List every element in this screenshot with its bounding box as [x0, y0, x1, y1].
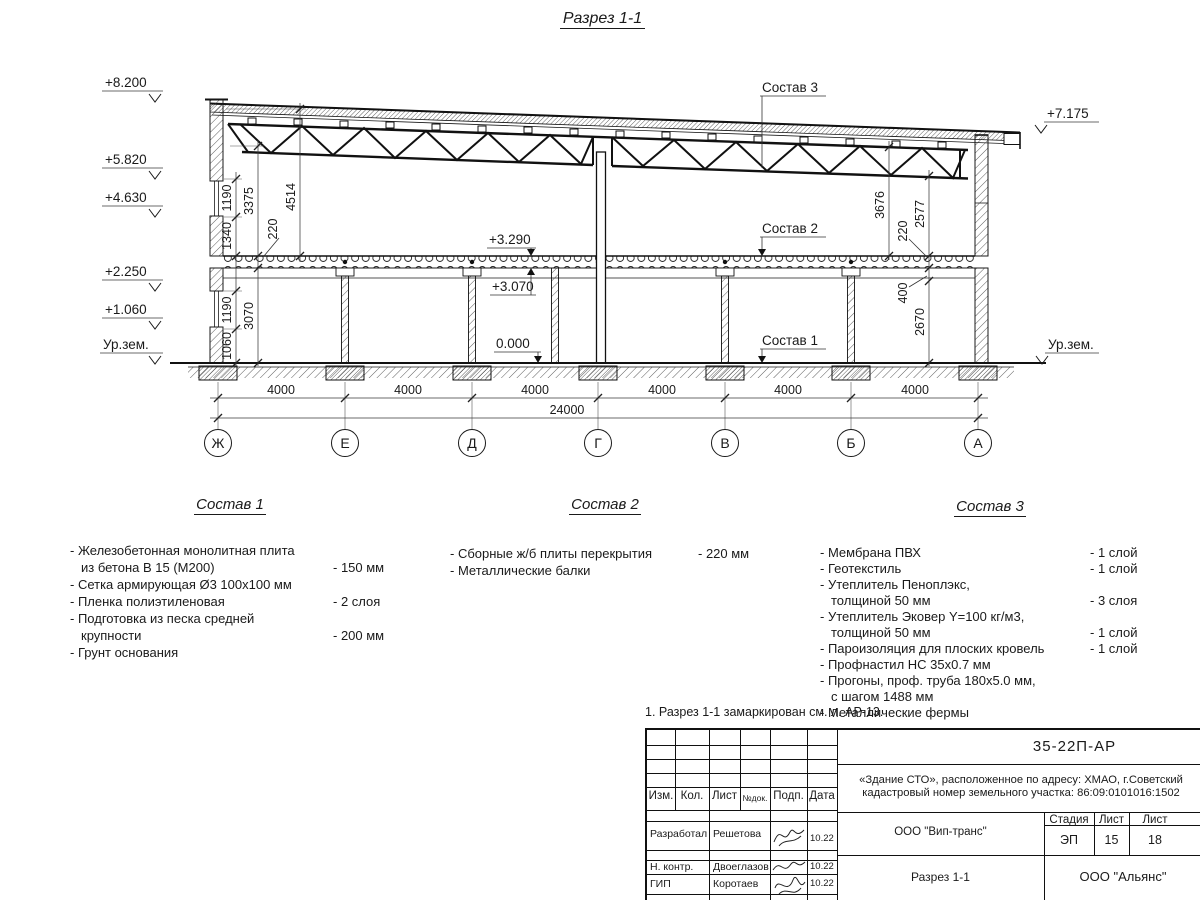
- spec-row: - Сборные ж/б плиты перекрытия- 220 мм: [450, 546, 760, 563]
- dim-label: 1190: [220, 185, 234, 212]
- axis-label: Е: [340, 435, 349, 451]
- tb-date: 10.22: [810, 878, 837, 889]
- tb-doc-number: 35-22П-АР: [947, 738, 1200, 755]
- tb-role: ГИП: [650, 878, 710, 890]
- spec-row: - Прогоны, проф. труба 180х5.0 мм,: [820, 673, 1160, 689]
- callout-sostav3: Состав 3: [762, 80, 818, 95]
- composition-callouts: Состав 3 Состав 2 Состав 1: [758, 80, 826, 363]
- tb-col-izm: Изм.: [647, 790, 675, 802]
- spec-row: толщиной 50 мм- 1 слой: [820, 625, 1160, 641]
- tb-sheet-name: Разрез 1-1: [837, 870, 1044, 884]
- level-label: 0.000: [496, 336, 530, 351]
- ground-level-label: Ур.зем.: [1048, 337, 1094, 352]
- roof-assembly: [210, 104, 1020, 179]
- tb-object-line1: «Здание СТО», расположенное по адресу: Х…: [839, 774, 1200, 787]
- spec-row: - Пароизоляция для плоских кровель- 1 сл…: [820, 641, 1160, 657]
- bay-dim: 4000: [901, 383, 929, 397]
- truss-bottom-chord-left: [242, 152, 593, 165]
- spec-row: - Грунт основания: [70, 645, 390, 662]
- sostav3-block: Состав 3 - Мембрана ПВХ- 1 слой - Геотек…: [820, 498, 1160, 721]
- spec-row: - Геотекстиль- 1 слой: [820, 561, 1160, 577]
- elevation-label: +8.200: [105, 75, 147, 90]
- callout-sostav2: Состав 2: [762, 221, 818, 236]
- axis-label: В: [720, 435, 729, 451]
- level-label: +3.070: [492, 279, 534, 294]
- spec-row: - Пленка полиэтиленовая- 2 слоя: [70, 594, 390, 611]
- dim-label: 220: [896, 221, 910, 242]
- spec-row: с шагом 1488 мм: [820, 689, 1160, 705]
- axis-label: Ж: [212, 435, 225, 451]
- tb-col-data: Дата: [807, 790, 837, 802]
- tb-sheet-col: Лист: [1094, 814, 1129, 826]
- bay-dim: 4000: [394, 383, 422, 397]
- elevation-label: +5.820: [105, 152, 147, 167]
- spec-row: крупности- 200 мм: [70, 628, 390, 645]
- dim-label: 3070: [242, 302, 256, 330]
- level-labels: +3.290 +3.070 0.000: [487, 232, 542, 363]
- tb-col-list: Лист: [709, 790, 740, 802]
- level-label: +3.290: [489, 232, 531, 247]
- elevation-marks-right: +7.175 Ур.зем.: [1035, 106, 1099, 364]
- bay-dim: 4000: [267, 383, 295, 397]
- elevation-label: +2.250: [105, 264, 147, 279]
- sheet-note: 1. Разрез 1-1 замаркирован см. л. АР-13.: [645, 705, 883, 719]
- sostav1-block: Состав 1 - Железобетонная монолитная пли…: [70, 496, 390, 662]
- tb-name: Двоеглазов: [713, 861, 769, 873]
- spec-row: - Утеплитель Эковер Y=100 кг/м3,: [820, 609, 1160, 625]
- spec-row: - Подготовка из песка средней: [70, 611, 390, 628]
- sostav2-title: Состав 2: [450, 496, 760, 518]
- spec-row: толщиной 50 мм- 3 слоя: [820, 593, 1160, 609]
- spec-row: - Утеплитель Пеноплэкс,: [820, 577, 1160, 593]
- tb-role: Н. контр.: [650, 861, 710, 873]
- tb-stage-col: Стадия: [1044, 814, 1094, 826]
- axis-label: Д: [467, 435, 477, 451]
- dim-label: 3375: [242, 187, 256, 215]
- spec-row: - Сетка армирующая Ø3 100х100 мм: [70, 577, 390, 594]
- tb-sheets-col: Лист: [1129, 814, 1181, 826]
- axis-label: Б: [846, 435, 855, 451]
- right-wall: [975, 135, 988, 363]
- elevation-marks-left: +8.200 +5.820 +4.630 +2.250 +1.060 Ур.зе…: [100, 75, 163, 364]
- dim-label: 2577: [913, 200, 927, 228]
- dim-chains-left: 1190 1340 3375 4514 220 1190 1060 3070: [220, 103, 306, 367]
- total-dim: 24000: [550, 403, 585, 417]
- elevation-label: +1.060: [105, 302, 147, 317]
- elevation-label: +4.630: [105, 190, 147, 205]
- signature: [771, 822, 807, 850]
- axis-label: Г: [594, 435, 602, 451]
- tb-sheet-val: 15: [1094, 833, 1129, 847]
- dim-label: 3676: [873, 191, 887, 219]
- spec-row: - Металлические балки: [450, 563, 760, 580]
- truss-bottom-chord-right: [612, 166, 968, 179]
- ground-level-label: Ур.зем.: [103, 337, 149, 352]
- tb-stage-val: ЭП: [1044, 833, 1094, 847]
- tb-org-center: ООО "Вип-транс": [837, 826, 1044, 838]
- callout-sostav1: Состав 1: [762, 333, 818, 348]
- spec-row: - Железобетонная монолитная плита: [70, 543, 390, 560]
- dim-label: 2670: [913, 308, 927, 336]
- spec-row: - Мембрана ПВХ- 1 слой: [820, 545, 1160, 561]
- tb-org-right: ООО "Альянс": [1044, 869, 1200, 884]
- tb-date: 10.22: [810, 833, 837, 844]
- tb-name: Решетова: [713, 828, 769, 840]
- bay-dim: 4000: [648, 383, 676, 397]
- title-block: Изм. Кол. Лист №док. Подп. Дата Разработ…: [645, 728, 1200, 900]
- tb-object-line2: кадастровый номер земельного участка: 86…: [839, 787, 1200, 800]
- signature: [769, 858, 809, 898]
- tb-role: Разработал: [650, 828, 710, 840]
- tb-col-kol: Кол.: [675, 790, 709, 802]
- tb-name: Коротаев: [713, 878, 769, 890]
- sostav2-block: Состав 2 - Сборные ж/б плиты перекрытия-…: [450, 496, 760, 580]
- axis-label: А: [973, 435, 983, 451]
- tb-date: 10.22: [810, 861, 837, 872]
- roof-insulation: [210, 104, 1020, 141]
- bottom-dimensions: 4000 4000 4000 4000 4000 4000 24000: [210, 382, 988, 429]
- dim-label: 400: [896, 283, 910, 304]
- elevation-label: +7.175: [1047, 106, 1089, 121]
- tb-col-podp: Подп.: [770, 790, 807, 802]
- sostav1-title: Состав 1: [70, 496, 390, 518]
- tb-col-ndok: №док.: [740, 793, 770, 803]
- axis-bubbles: Ж Е Д Г В Б А: [205, 430, 992, 457]
- spec-row: - Профнастил НС 35х0.7 мм: [820, 657, 1160, 673]
- dim-label: 1190: [220, 297, 234, 324]
- eaves-fascia: [1004, 134, 1020, 145]
- sostav3-title: Состав 3: [820, 498, 1160, 520]
- dim-label: 1340: [220, 222, 234, 250]
- tb-sheets-val: 18: [1129, 833, 1181, 847]
- center-column: [597, 152, 606, 363]
- bay-dim: 4000: [521, 383, 549, 397]
- dim-label: 4514: [284, 183, 298, 211]
- ground: [170, 363, 1046, 380]
- dim-label: 220: [266, 219, 280, 240]
- dim-label: 1060: [220, 332, 234, 360]
- spec-row: из бетона В 15 (М200)- 150 мм: [70, 560, 390, 577]
- bay-dim: 4000: [774, 383, 802, 397]
- section-drawing: +8.200 +5.820 +4.630 +2.250 +1.060 Ур.зе…: [0, 0, 1200, 480]
- drawing-sheet: { "page": { "title": "Разрез 1-1" }, "co…: [0, 0, 1200, 900]
